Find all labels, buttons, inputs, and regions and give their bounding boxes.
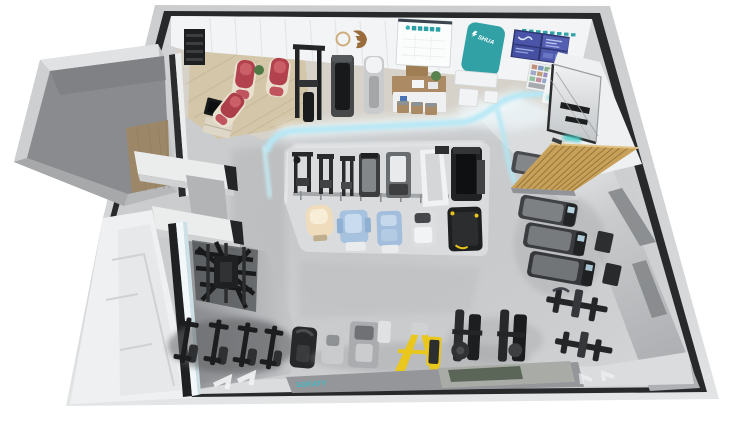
svg-text:SUKATY: SUKATY	[296, 379, 328, 390]
